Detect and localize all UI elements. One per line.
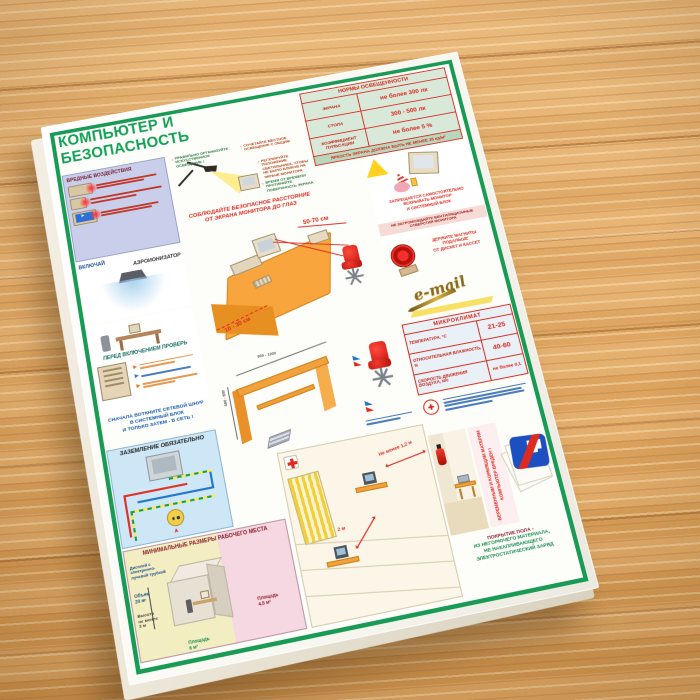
arrow-icon: ▶ [133,365,138,371]
desk-top [236,356,329,398]
adjust-marker-icon [353,360,361,366]
radiation-glow-icon [89,208,103,221]
cursor-arrow-icon: ➤ [80,213,85,218]
poster-page: КОМПЬЮТЕР И БЕЗОПАСНОСТЬ НОРМЫ ОСВЕЩЕННО… [55,65,582,668]
harmful-effects-box: ВРЕДНЫЕ ВОЗДЕЙСТВИЯ ➤ [62,157,181,263]
side-gap-label: Не менее 1,2 м [378,439,413,457]
poster: КОМПЬЮТЕР И БЕЗОПАСНОСТЬ НОРМЫ ОСВЕЩЕННО… [41,51,600,685]
system-unit-icon [70,197,88,211]
lighting-tip: ↑СОЧЕТАЙТЕ МЕСТНОЕ ОСВЕЩЕНИЕ С ОБЩИМ [239,133,303,153]
monitor-icon [238,173,261,191]
arrow-icon: ▶ [135,374,140,380]
monitor-icon [408,151,439,174]
first-aid-kit-icon [283,455,299,471]
tip-text: СОЧЕТАЙТЕ МЕСТНОЕ ОСВЕЩЕНИЕ С ОБЩИМ [243,133,304,152]
row-gap-label: 2 м [337,525,346,532]
spacing-arrow [386,451,426,467]
floor-line [296,586,463,598]
desk-width-label: 800 - 1200 [257,351,276,359]
poster-green-frame: КОМПЬЮТЕР И БЕЗОПАСНОСТЬ НОРМЫ ОСВЕЩЕННО… [50,60,589,675]
radiation-glow-icon [79,196,93,209]
red-circle-cross-icon: ✚ [422,398,441,416]
grounding-box: ЗАЗЕМЛЕНИЕ ОБЯЗАТЕЛЬНО ➤ [106,429,234,549]
monitor-icon: ➤ [72,208,98,225]
bottom-right-row: БЕРЕМЕННЫМ И КОРМЯЩИМ МАТЕРЯМ КОМПЬЮТЕР … [428,414,567,540]
area-label: Площадь 6 м² [188,636,211,651]
ground-wire-blue [137,486,214,503]
socket-smiley-icon [166,507,186,527]
ground-wire-blue [209,469,215,488]
cartoon-character-icon [393,181,411,194]
workstation-icon [352,469,389,498]
adjust-marker-icon [366,406,374,412]
keyboard-tray [256,384,315,410]
footrest-icon [267,429,291,449]
window-blinds-icon [287,471,337,546]
check-list: ▶ ▶ ▶ [132,348,202,394]
no-computer-sign-icon [509,433,551,470]
electric-warning-triangle-icon: ⚡ [363,157,389,178]
room-cube-illustration [164,557,233,628]
arrow-icon: ➤ [174,527,181,534]
chair-note-lines [365,408,419,427]
email-text: e-mail [411,272,468,304]
spacing-arrow [356,516,375,548]
radiation-glow-icon [84,181,98,194]
drink-glass-icon [410,177,418,186]
desk-lamp-icon [178,170,194,187]
ion-glow-icon [100,273,171,318]
arrow-icon: ▶ [136,384,141,390]
system-unit-icon [97,362,132,401]
poster-sheet: КОМПЬЮТЕР И БЕЗОПАСНОСТЬ НОРМЫ ОСВЕЩЕННО… [41,51,600,685]
photo-scene: КОМПЬЮТЕР И БЕЗОПАСНОСТЬ НОРМЫ ОСВЕЩЕННО… [0,0,700,700]
floor-line [291,560,463,572]
